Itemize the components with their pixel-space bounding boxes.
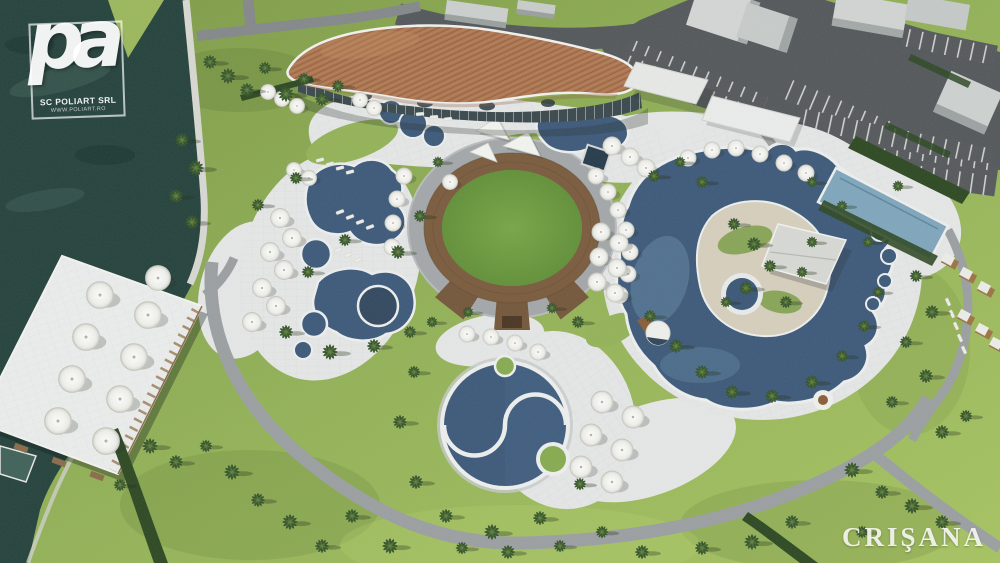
aerial-render-aquapark: pa SC POLIART SRL WWW.POLIART.RO CRIŞANA xyxy=(0,0,1000,563)
render-grain xyxy=(0,0,1000,563)
render-scene xyxy=(0,0,1000,563)
